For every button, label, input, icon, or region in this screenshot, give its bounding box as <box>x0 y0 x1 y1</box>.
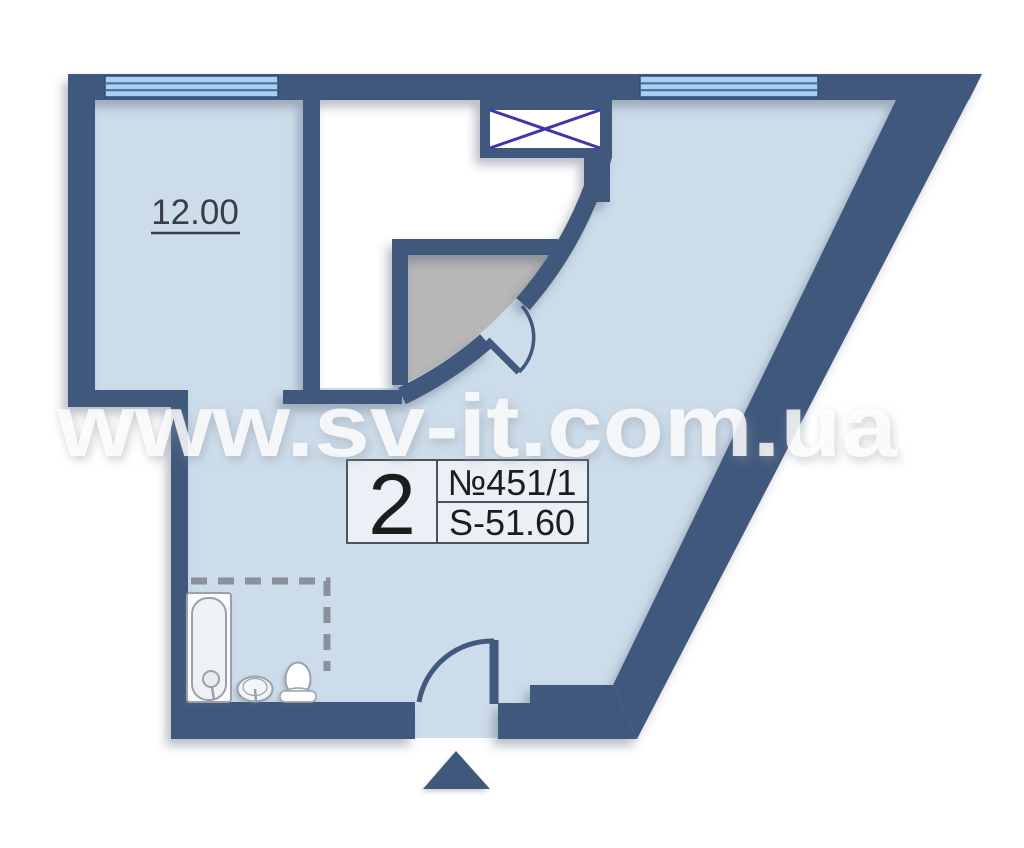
wall-left <box>68 74 95 407</box>
bathtub-drain <box>203 671 219 687</box>
vent-shaft-icon <box>490 110 600 148</box>
watermark: www.sv-it.com.ua <box>56 376 898 475</box>
unit-area-value: S-51.60 <box>449 502 575 543</box>
toilet-base <box>280 691 316 702</box>
sink-icon <box>238 677 273 702</box>
window-main-icon <box>640 76 818 97</box>
wall-bottom-left <box>171 702 415 739</box>
living-room-area-value: 12.00 <box>151 193 239 232</box>
floor-plan: 12.00 2 №451/1 S-51.60 www.sv-it.com.ua <box>0 0 1024 848</box>
bathtub-icon <box>187 593 231 702</box>
floor-plan-svg: 12.00 2 №451/1 S-51.60 www.sv-it.com.ua <box>0 0 1024 848</box>
window-living-icon <box>105 76 278 97</box>
window-pane <box>105 76 278 97</box>
sink-pedestal <box>255 689 256 701</box>
room-area-label: 12.00 <box>151 193 240 233</box>
window-pane <box>640 76 818 97</box>
wall-room-right <box>303 100 320 404</box>
